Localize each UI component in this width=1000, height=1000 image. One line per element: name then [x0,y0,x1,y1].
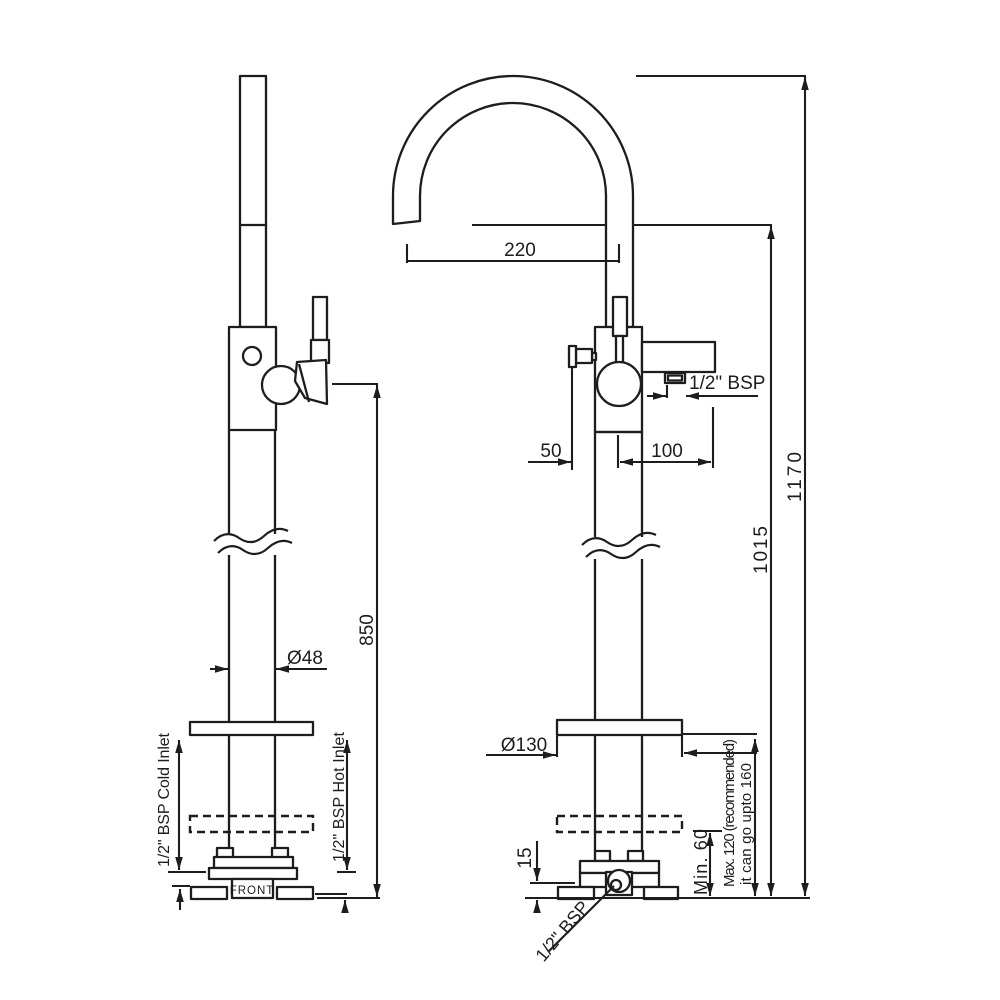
side-ball-joint [262,366,300,404]
base-bsp-label: 1/2" BSP [531,897,593,965]
front-hidden-flange [557,816,682,832]
max120-label-line2: it can go upto 160 [738,763,755,885]
dim-850-label: 850 [357,614,378,646]
front-view [393,76,715,899]
front-outlet-fitting-inner [668,376,682,381]
max120-label-line1: Max. 120 (recommended) [721,739,738,887]
front-lever-grip [613,297,627,336]
dim-220-label: 220 [504,240,536,261]
min60-label: Min. 60 [691,829,711,895]
side-lever-grip [313,297,327,340]
dim-130-label: Ø130 [501,735,547,756]
side-floor-flange [190,722,313,735]
side-base-step-2 [209,868,297,879]
side-hidden-flange [190,816,313,832]
front-nut-left [595,851,610,861]
dim-1015-label: 1015 [751,526,772,574]
front-lever-stem [616,336,623,364]
dim-15-label: 15 [515,847,536,868]
side-view: FRONT [190,76,329,899]
front-label: FRONT [230,885,275,897]
side-screw-detail [243,347,261,365]
side-base-pad-left [191,887,227,899]
dim-48-label: Ø48 [287,648,323,669]
front-spout-outlet-arm [642,342,715,372]
cold-inlet-label: 1/2" BSP Cold Inlet [156,732,173,867]
technical-drawing-page: FRONT [0,0,1000,1000]
front-nut-right [628,851,643,861]
side-spout-tube [240,76,266,327]
hot-inlet-label: 1/2" BSP Hot Inlet [331,731,348,862]
dim-100-label: 100 [651,441,683,462]
front-knob-cap [569,346,576,367]
bath-filler-drawing: FRONT [0,0,1000,1000]
front-gooseneck-spout [393,76,633,327]
side-base-step-1 [214,857,293,868]
front-floor-flange [557,720,682,735]
dim-1170-label: 1170 [785,452,806,502]
front-knob-body [576,349,592,363]
dim-50-label: 50 [540,441,561,462]
side-base-pad-right [277,887,313,899]
front-valve-cap [597,362,641,406]
outlet-bsp-label: 1/2" BSP [689,373,765,394]
